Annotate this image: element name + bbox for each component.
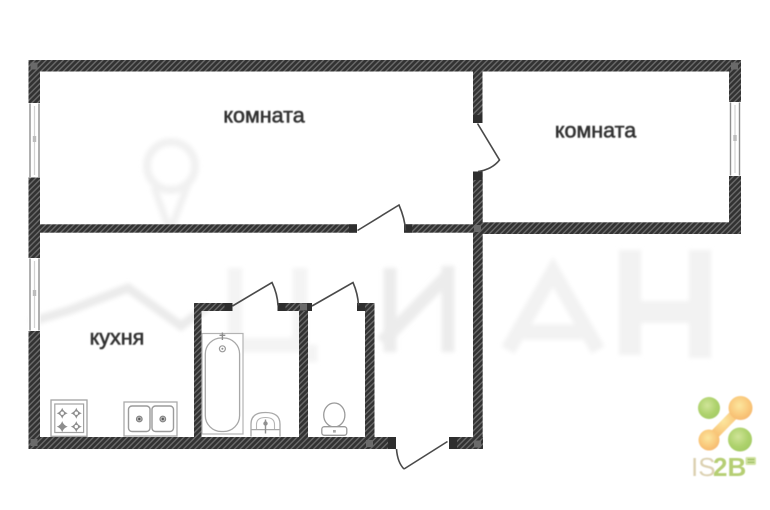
svg-text:комната: комната <box>555 119 636 143</box>
svg-text:2B: 2B <box>713 452 746 482</box>
svg-text:IS: IS <box>691 452 716 482</box>
svg-text:комната: комната <box>223 104 304 128</box>
svg-text:кухня: кухня <box>90 326 145 350</box>
